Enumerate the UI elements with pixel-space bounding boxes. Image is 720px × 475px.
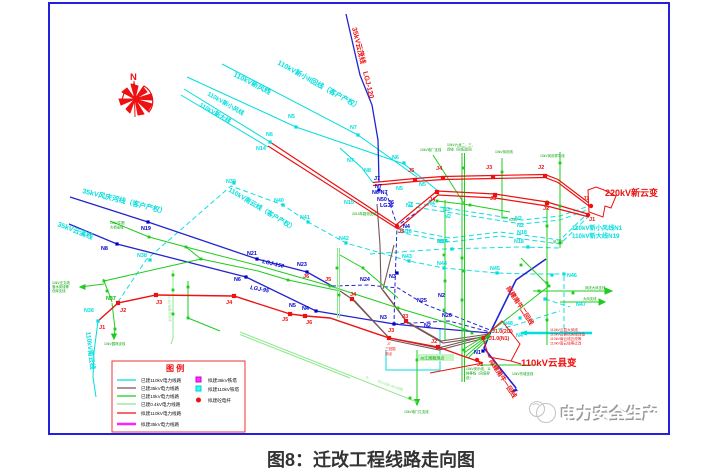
svg-text:N46: N46: [567, 273, 577, 279]
svg-text:N14: N14: [438, 239, 448, 245]
svg-text:N44: N44: [437, 261, 447, 267]
svg-text:2013年勘测支线: 2013年勘测支线: [352, 211, 377, 216]
svg-text:拟建110kV电力线路: 拟建110kV电力线路: [141, 410, 182, 417]
svg-text:N24: N24: [360, 277, 370, 283]
svg-text:电力安全生产: 电力安全生产: [560, 404, 659, 424]
svg-text:110kV云县大凤线: 110kV云县大凤线: [550, 327, 578, 332]
svg-text:N21: N21: [247, 251, 257, 257]
svg-text:J4: J4: [350, 292, 357, 298]
svg-text:N4: N4: [406, 203, 413, 209]
svg-text:N39: N39: [226, 179, 236, 185]
svg-text:J2: J2: [431, 339, 437, 345]
svg-text:110kV南云线等迁改: 110kV南云线等迁改: [550, 341, 582, 346]
svg-text:N6-N7: N6-N7: [372, 190, 388, 196]
svg-text:N7: N7: [350, 125, 357, 131]
svg-text:N18: N18: [514, 239, 524, 245]
svg-text:拟建35kV铁塔: 拟建35kV铁塔: [208, 377, 237, 384]
svg-text:已建35kV电力线路: 已建35kV电力线路: [141, 385, 179, 392]
svg-text:N26: N26: [442, 313, 452, 319]
svg-text:J3: J3: [402, 314, 408, 320]
svg-text:J5: J5: [398, 229, 404, 235]
svg-text:已建10kV电力线路: 已建10kV电力线路: [141, 393, 179, 400]
svg-text:N6: N6: [392, 155, 399, 161]
svg-text:N45: N45: [490, 266, 500, 272]
svg-text:J1: J1: [583, 196, 589, 202]
svg-text:10kV凤庆线: 10kV凤庆线: [495, 149, 514, 154]
svg-text:测点: 测点: [385, 351, 393, 356]
svg-text:N2: N2: [424, 323, 431, 329]
svg-text:J3: J3: [486, 165, 492, 171]
svg-text:10kV电厂支线: 10kV电厂支线: [420, 147, 442, 152]
svg-text:N4: N4: [302, 306, 309, 312]
svg-text:J1: J1: [589, 217, 595, 223]
svg-text:拟建35kV电力线路: 拟建35kV电力线路: [141, 421, 179, 428]
svg-text:N: N: [130, 72, 137, 83]
svg-text:J3: J3: [388, 328, 394, 334]
svg-text:N15: N15: [344, 200, 354, 206]
svg-text:110kV新大线N19: 110kV新大线N19: [572, 232, 620, 240]
svg-text:J6: J6: [306, 320, 312, 326]
svg-text:10kV东城支线: 10kV东城支线: [512, 371, 534, 376]
svg-text:N41: N41: [300, 215, 310, 221]
svg-text:110kV南云线迁改等: 110kV南云线迁改等: [550, 336, 582, 341]
svg-text:已建0.4kV电力线路: 已建0.4kV电力线路: [141, 401, 181, 408]
svg-text:N3: N3: [380, 315, 387, 321]
svg-text:拟建砼电杆: 拟建砼电杆: [208, 397, 231, 404]
svg-text:N40: N40: [274, 198, 284, 204]
svg-text:N47: N47: [576, 302, 586, 308]
svg-text:N18: N18: [517, 230, 527, 236]
svg-text:N4: N4: [516, 333, 523, 339]
svg-text:J6: J6: [388, 200, 394, 206]
svg-text:N2: N2: [517, 223, 524, 229]
svg-text:110kV云县变: 110kV云县变: [521, 357, 577, 369]
svg-text:凤习线: 凤习线: [553, 239, 564, 244]
svg-text:N2: N2: [515, 216, 522, 222]
svg-text:N7: N7: [347, 158, 354, 164]
svg-text:10kV园林支线: 10kV园林支线: [104, 341, 126, 346]
svg-text:N8: N8: [364, 168, 371, 174]
svg-text:凤庆大凤支线: 凤庆大凤支线: [585, 285, 606, 290]
svg-text:J1.0(2/2): J1.0(2/2): [492, 329, 513, 335]
svg-text:J1: J1: [99, 325, 105, 331]
svg-text:J1.0(N1): J1.0(N1): [489, 336, 509, 342]
svg-text:N36: N36: [84, 308, 94, 314]
svg-text:J2: J2: [120, 308, 126, 314]
svg-text:J2: J2: [538, 165, 544, 171]
svg-text:仓库支线: 仓库支线: [52, 288, 66, 293]
svg-text:N25: N25: [417, 298, 427, 304]
svg-text:0.4kV苗圃场支线: 0.4kV苗圃场支线: [167, 296, 173, 322]
svg-text:N14: N14: [256, 146, 266, 152]
svg-text:设）: 设）: [466, 375, 473, 380]
svg-text:10kV凤庆祥牛线: 10kV凤庆祥牛线: [540, 153, 565, 158]
svg-text:N6: N6: [234, 277, 241, 283]
svg-text:N38: N38: [137, 253, 147, 259]
svg-text:N37: N37: [106, 296, 116, 302]
svg-text:J5: J5: [325, 277, 331, 283]
svg-text:N5: N5: [288, 114, 295, 120]
svg-text:N3: N3: [389, 274, 396, 280]
svg-text:拟建110kV铁塔: 拟建110kV铁塔: [208, 386, 239, 393]
svg-text:J7: J7: [387, 342, 391, 346]
svg-text:三回勘: 三回勘: [385, 346, 396, 351]
svg-text:N23: N23: [297, 262, 307, 268]
svg-text:J5: J5: [408, 168, 414, 174]
svg-text:大桥支线: 大桥支线: [110, 225, 124, 230]
svg-text:10kV牛圈: 10kV牛圈: [110, 220, 125, 225]
svg-text:图8：迁改工程线路走向图: 图8：迁改工程线路走向图: [267, 449, 475, 470]
svg-text:J4: J4: [429, 197, 436, 203]
svg-text:N19: N19: [141, 226, 151, 232]
svg-text:220kV新云变: 220kV新云变: [605, 187, 658, 198]
svg-text:已建110kV电力线路: 已建110kV电力线路: [141, 377, 182, 384]
svg-text:排等线（同塔架: 排等线（同塔架: [466, 371, 490, 376]
svg-text:J1: J1: [477, 362, 483, 368]
svg-text:N42: N42: [339, 236, 349, 242]
svg-text:J7: J7: [374, 176, 380, 182]
svg-text:J3: J3: [490, 196, 496, 202]
svg-text:J6: J6: [303, 274, 309, 280]
svg-text:四线（同塔双回）: 四线（同塔双回）: [447, 147, 474, 152]
svg-text:J4: J4: [226, 300, 233, 306]
svg-text:N43: N43: [402, 254, 412, 260]
svg-text:N8: N8: [101, 246, 108, 252]
svg-text:N2: N2: [438, 293, 445, 299]
svg-text:10kV九龙二、三、: 10kV九龙二、三、: [447, 142, 475, 147]
svg-text:110kV云县凤庆线改造: 110kV云县凤庆线改造: [550, 332, 585, 337]
svg-text:N5: N5: [419, 182, 426, 188]
svg-text:N5: N5: [396, 186, 403, 192]
svg-text:J4: J4: [436, 166, 443, 172]
svg-text:J2: J2: [543, 206, 549, 212]
svg-text:110kV新小风线N1: 110kV新小风线N1: [572, 224, 623, 232]
svg-text:N48: N48: [503, 321, 513, 327]
svg-text:J6江周勘测点: J6江周勘测点: [420, 355, 444, 361]
svg-text:N3: N3: [443, 207, 450, 213]
svg-text:J3: J3: [156, 300, 162, 306]
svg-text:N6: N6: [266, 132, 273, 138]
svg-text:N1: N1: [474, 350, 481, 356]
svg-text:J5: J5: [282, 317, 288, 323]
svg-text:N2: N2: [444, 214, 451, 220]
svg-text:大凤支线: 大凤支线: [583, 296, 597, 301]
svg-text:N5: N5: [289, 303, 296, 309]
svg-text:10kV电门江支线: 10kV电门江支线: [404, 409, 429, 414]
svg-text:图 例: 图 例: [166, 363, 184, 373]
